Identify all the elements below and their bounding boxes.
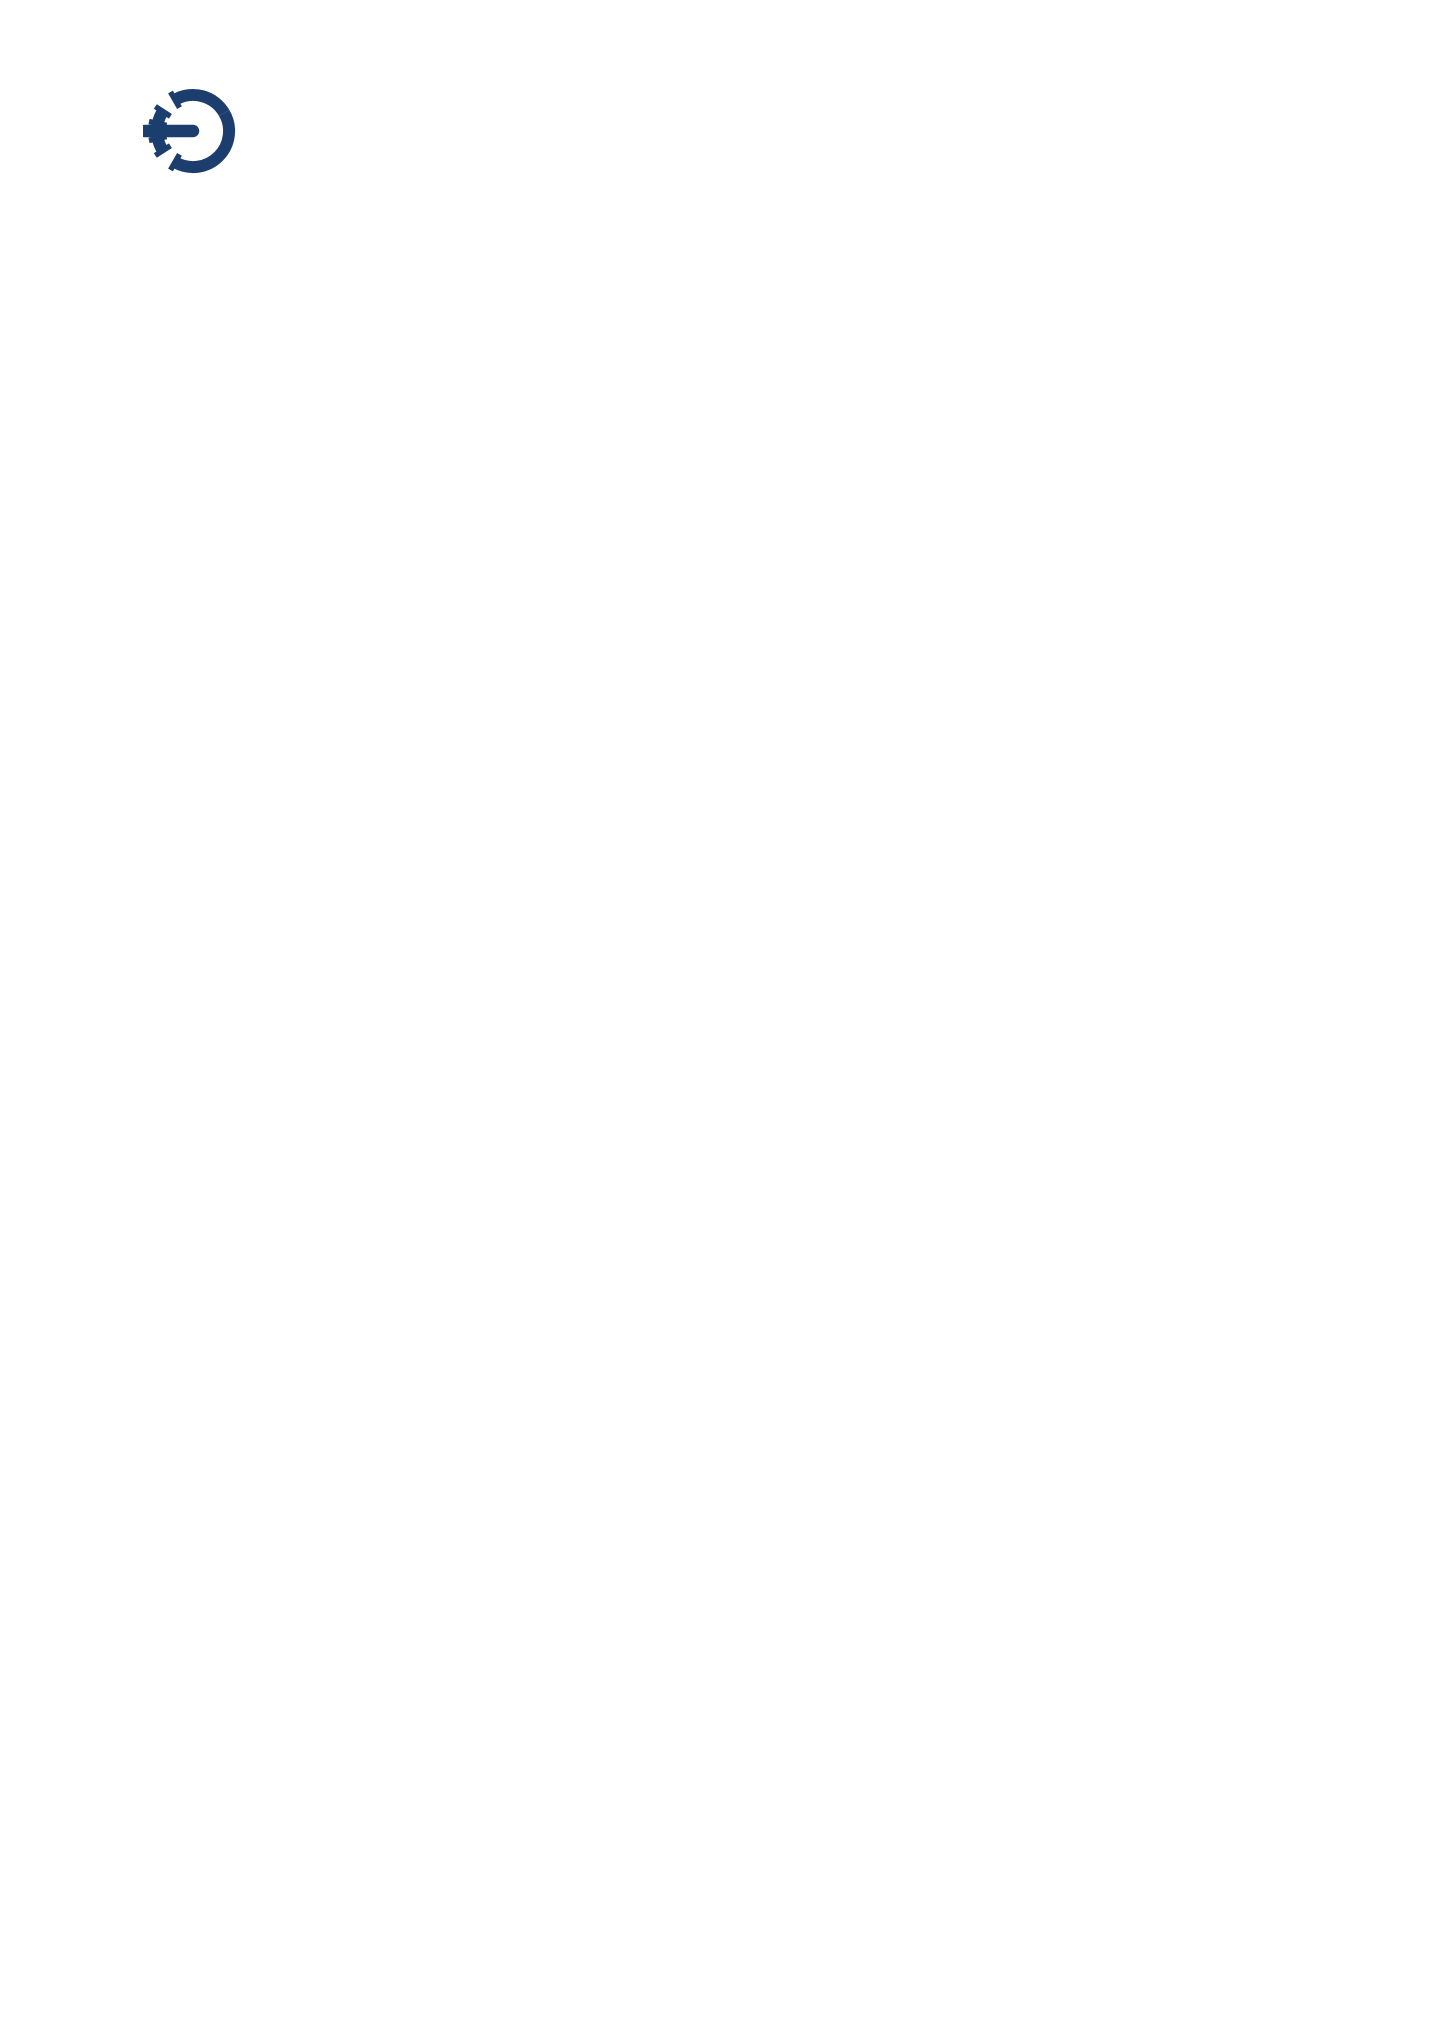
page: { "header": { "logo_text": "OGE", "addre…: [0, 0, 1440, 2038]
directions-section: [147, 1410, 1047, 1456]
oge-logo-icon: [143, 88, 443, 174]
